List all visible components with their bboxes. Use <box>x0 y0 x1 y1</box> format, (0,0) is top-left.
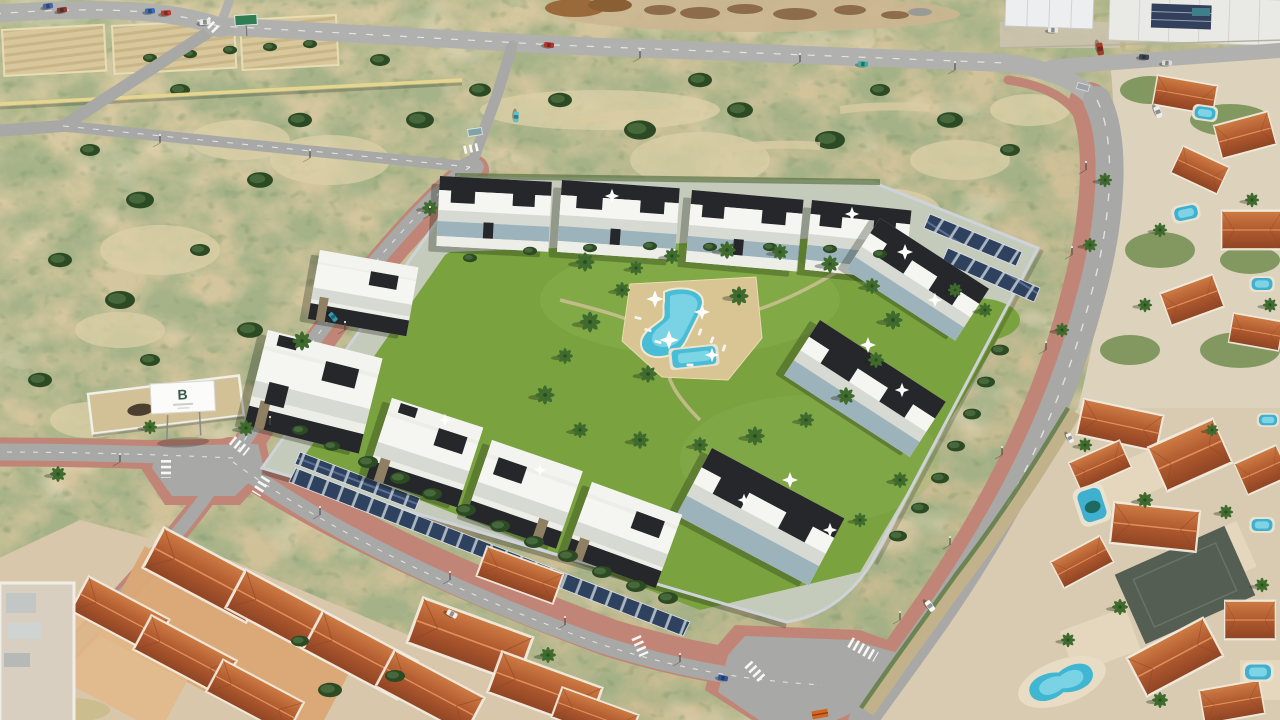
swimming-pool <box>1242 662 1274 682</box>
diagonal-road-west <box>0 126 63 131</box>
bus-shelter <box>468 128 483 137</box>
villa-roof <box>1109 501 1201 553</box>
aerial-photo: B <box>0 0 1280 720</box>
villa-roof <box>1221 210 1280 251</box>
swimming-pool <box>1257 413 1279 427</box>
villa-roof <box>1224 600 1276 641</box>
aerial-photo-canvas: B <box>0 0 1280 720</box>
swimming-pool <box>1249 276 1275 292</box>
billboard-logo: B <box>177 386 188 403</box>
white-compound <box>0 583 74 720</box>
rooftop-solar-array <box>1151 3 1212 29</box>
apartment-block <box>677 189 803 277</box>
swimming-pool <box>1249 517 1275 533</box>
industrial-warehouses <box>998 0 1280 48</box>
apartment-block <box>428 176 552 258</box>
apartment-block <box>549 179 680 266</box>
